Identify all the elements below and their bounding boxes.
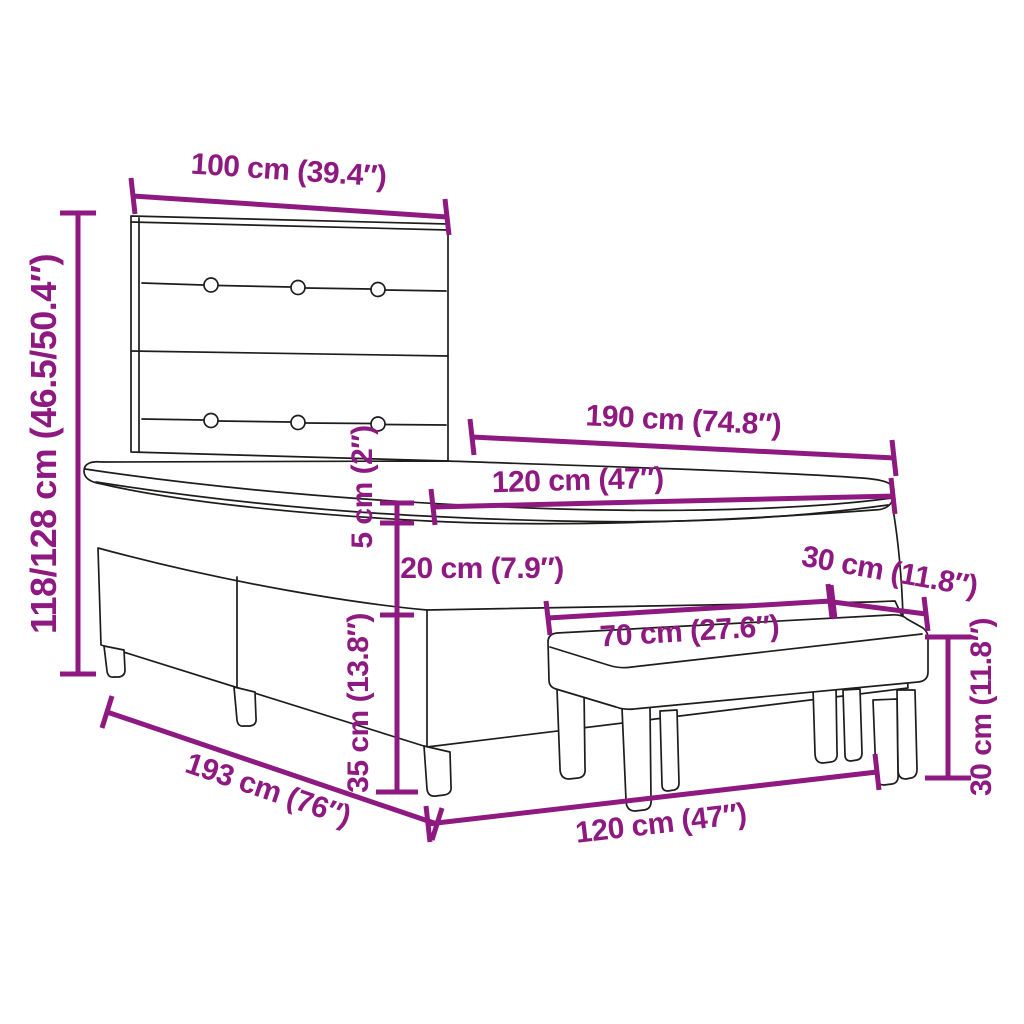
bench-rear-leg xyxy=(660,710,679,791)
dim-topper-height-label: 5 cm (2″) xyxy=(346,425,379,548)
tuft-button xyxy=(291,281,305,295)
bench-leg xyxy=(813,686,837,763)
dim-bed-length-label: 193 cm (76″) xyxy=(181,747,354,833)
bench-rear-leg xyxy=(843,689,862,761)
dim-headboard-width-label: 100 cm (39.4″) xyxy=(190,148,388,194)
bed-leg xyxy=(104,646,125,677)
tuft-button xyxy=(291,416,305,430)
bench-leg xyxy=(622,707,651,811)
dim-bench-depth-label: 30 cm (11.8″) xyxy=(799,540,980,603)
headboard xyxy=(131,216,448,461)
dim-headboard-height-label: 118/128 cm (46.5/50.4″) xyxy=(23,254,64,634)
tuft-button xyxy=(204,414,218,428)
tuft-button xyxy=(371,283,385,297)
dim-leg-height-label: 35 cm (13.8″) xyxy=(342,613,375,793)
dim-bed-width: 120 cm (47″) xyxy=(426,754,879,850)
mattress-outline xyxy=(84,461,894,524)
diagram-canvas: 100 cm (39.4″) 118/128 cm (46.5/50.4″) 1… xyxy=(0,0,1024,1024)
bed-dimension-diagram: 100 cm (39.4″) 118/128 cm (46.5/50.4″) 1… xyxy=(0,0,1024,1024)
bed-leg-foot xyxy=(897,690,917,779)
dim-mattress-width-label: 120 cm (47″) xyxy=(491,462,664,499)
dim-bench-height-label: 30 cm (11.8″) xyxy=(965,618,998,796)
tuft-button xyxy=(204,278,218,292)
bed-leg xyxy=(424,746,451,796)
dim-headboard-height: 118/128 cm (46.5/50.4″) xyxy=(23,213,96,674)
dim-mattress-length-label: 190 cm (74.8″) xyxy=(585,399,782,442)
mattress xyxy=(84,461,894,524)
dim-bench-height: 30 cm (11.8″) xyxy=(925,618,998,796)
bench-leg xyxy=(557,689,585,779)
bed-leg xyxy=(234,687,256,726)
dim-base-height-label: 20 cm (7.9″) xyxy=(400,552,563,585)
